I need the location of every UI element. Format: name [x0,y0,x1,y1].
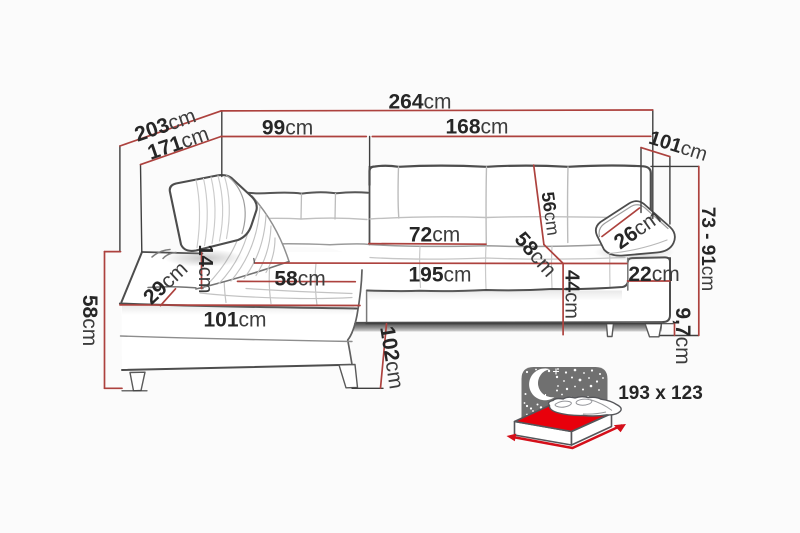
svg-text:168cm: 168cm [445,116,508,139]
svg-text:14cm: 14cm [194,245,216,294]
svg-text:9,7cm: 9,7cm [671,307,694,364]
svg-text:264cm: 264cm [388,91,451,114]
svg-text:99cm: 99cm [262,117,313,140]
svg-text:195cm: 195cm [408,264,471,287]
svg-text:58cm: 58cm [274,268,325,291]
svg-text:73 - 91cm: 73 - 91cm [697,207,718,291]
svg-text:101cm: 101cm [203,309,266,332]
svg-text:193 x 123: 193 x 123 [618,383,703,404]
svg-text:58cm: 58cm [78,295,101,346]
svg-text:22cm: 22cm [628,263,679,286]
svg-text:72cm: 72cm [409,224,460,247]
svg-text:44cm: 44cm [561,270,583,319]
